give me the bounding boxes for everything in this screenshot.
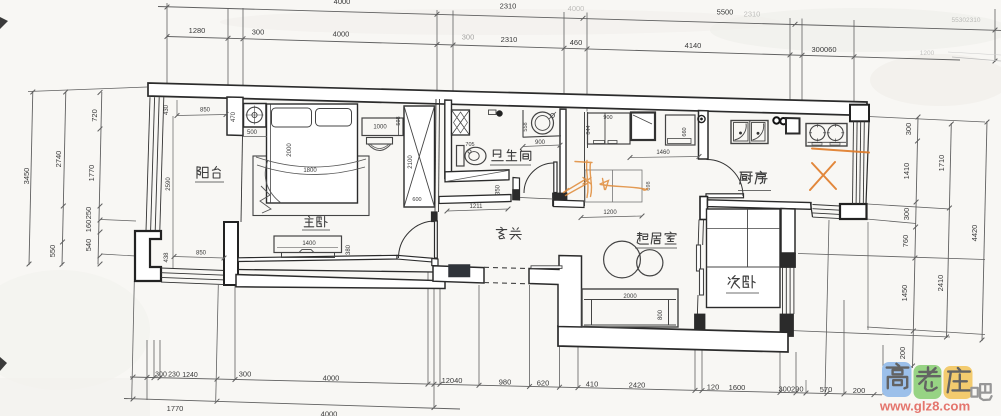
- svg-text:200: 200: [853, 386, 866, 395]
- svg-text:160: 160: [84, 220, 93, 233]
- svg-text:600: 600: [412, 197, 421, 203]
- svg-text:4420: 4420: [970, 225, 979, 242]
- svg-text:1200: 1200: [603, 210, 617, 216]
- svg-text:2310: 2310: [500, 2, 517, 11]
- svg-text:550: 550: [48, 245, 57, 258]
- svg-text:12040: 12040: [442, 376, 463, 385]
- svg-text:800: 800: [658, 309, 664, 320]
- svg-text:2590: 2590: [166, 177, 172, 191]
- svg-text:460: 460: [570, 38, 583, 47]
- svg-text:500: 500: [247, 130, 258, 136]
- svg-text:900: 900: [603, 115, 612, 121]
- svg-text:598: 598: [396, 116, 402, 125]
- svg-text:300: 300: [252, 28, 265, 37]
- svg-text:1211: 1211: [470, 204, 484, 210]
- svg-text:1710: 1710: [937, 155, 946, 172]
- svg-text:300: 300: [902, 208, 911, 221]
- svg-text:4000: 4000: [334, 0, 351, 6]
- svg-text:1450: 1450: [900, 285, 909, 302]
- svg-text:300: 300: [462, 33, 475, 42]
- svg-text:230: 230: [168, 372, 180, 379]
- svg-text:5500: 5500: [717, 8, 734, 17]
- svg-text:430: 430: [164, 104, 170, 115]
- svg-text:1400: 1400: [302, 241, 316, 247]
- svg-text:1460: 1460: [656, 150, 670, 156]
- svg-text:760: 760: [901, 235, 910, 248]
- svg-text:844: 844: [586, 125, 592, 134]
- svg-text:540: 540: [84, 239, 93, 252]
- svg-text:300290: 300290: [778, 384, 803, 393]
- svg-text:1770: 1770: [167, 404, 184, 413]
- svg-text:300060: 300060: [811, 45, 836, 54]
- svg-text:2420: 2420: [629, 381, 646, 390]
- svg-text:1280: 1280: [189, 26, 206, 35]
- svg-text:1200: 1200: [920, 50, 935, 57]
- svg-text:4140: 4140: [685, 41, 702, 50]
- svg-text:2000: 2000: [287, 143, 293, 157]
- svg-text:900: 900: [535, 140, 546, 146]
- svg-text:250: 250: [84, 207, 93, 220]
- svg-text:1000: 1000: [373, 125, 387, 131]
- svg-text:2000: 2000: [623, 294, 637, 300]
- svg-text:2740: 2740: [54, 151, 63, 168]
- svg-text:2310: 2310: [501, 35, 518, 44]
- svg-text:1800: 1800: [303, 168, 317, 174]
- svg-text:850: 850: [200, 108, 211, 114]
- svg-text:438: 438: [164, 252, 170, 263]
- svg-text:570: 570: [820, 385, 833, 394]
- svg-text:4000: 4000: [323, 373, 340, 382]
- svg-text:1240: 1240: [182, 372, 198, 379]
- svg-text:2310: 2310: [744, 10, 761, 19]
- svg-text:705: 705: [465, 142, 474, 148]
- svg-text:1770: 1770: [87, 165, 96, 182]
- svg-text:300: 300: [904, 123, 913, 136]
- svg-text:850: 850: [196, 251, 207, 257]
- svg-text:3450: 3450: [22, 168, 31, 185]
- svg-text:4000: 4000: [568, 4, 585, 13]
- svg-text:2100: 2100: [408, 155, 414, 169]
- svg-text:558: 558: [523, 122, 529, 131]
- svg-text:410: 410: [586, 380, 599, 389]
- svg-text:200: 200: [898, 347, 907, 360]
- svg-text:4000: 4000: [333, 30, 350, 39]
- svg-text:55302310: 55302310: [952, 17, 981, 24]
- svg-text:470: 470: [231, 111, 237, 122]
- svg-text:620: 620: [537, 378, 550, 387]
- svg-text:980: 980: [499, 377, 512, 386]
- svg-text:720: 720: [90, 109, 99, 122]
- svg-text:www.glz8.com: www.glz8.com: [879, 399, 970, 414]
- svg-text:380: 380: [346, 244, 352, 255]
- svg-text:120: 120: [707, 382, 720, 391]
- svg-text:300: 300: [239, 370, 252, 379]
- svg-text:4000: 4000: [321, 410, 338, 416]
- svg-text:2410: 2410: [936, 275, 945, 292]
- svg-text:660: 660: [682, 127, 688, 136]
- svg-text:350: 350: [496, 184, 502, 195]
- svg-text:300: 300: [155, 371, 167, 378]
- svg-text:1600: 1600: [729, 383, 746, 392]
- svg-text:1410: 1410: [902, 163, 911, 180]
